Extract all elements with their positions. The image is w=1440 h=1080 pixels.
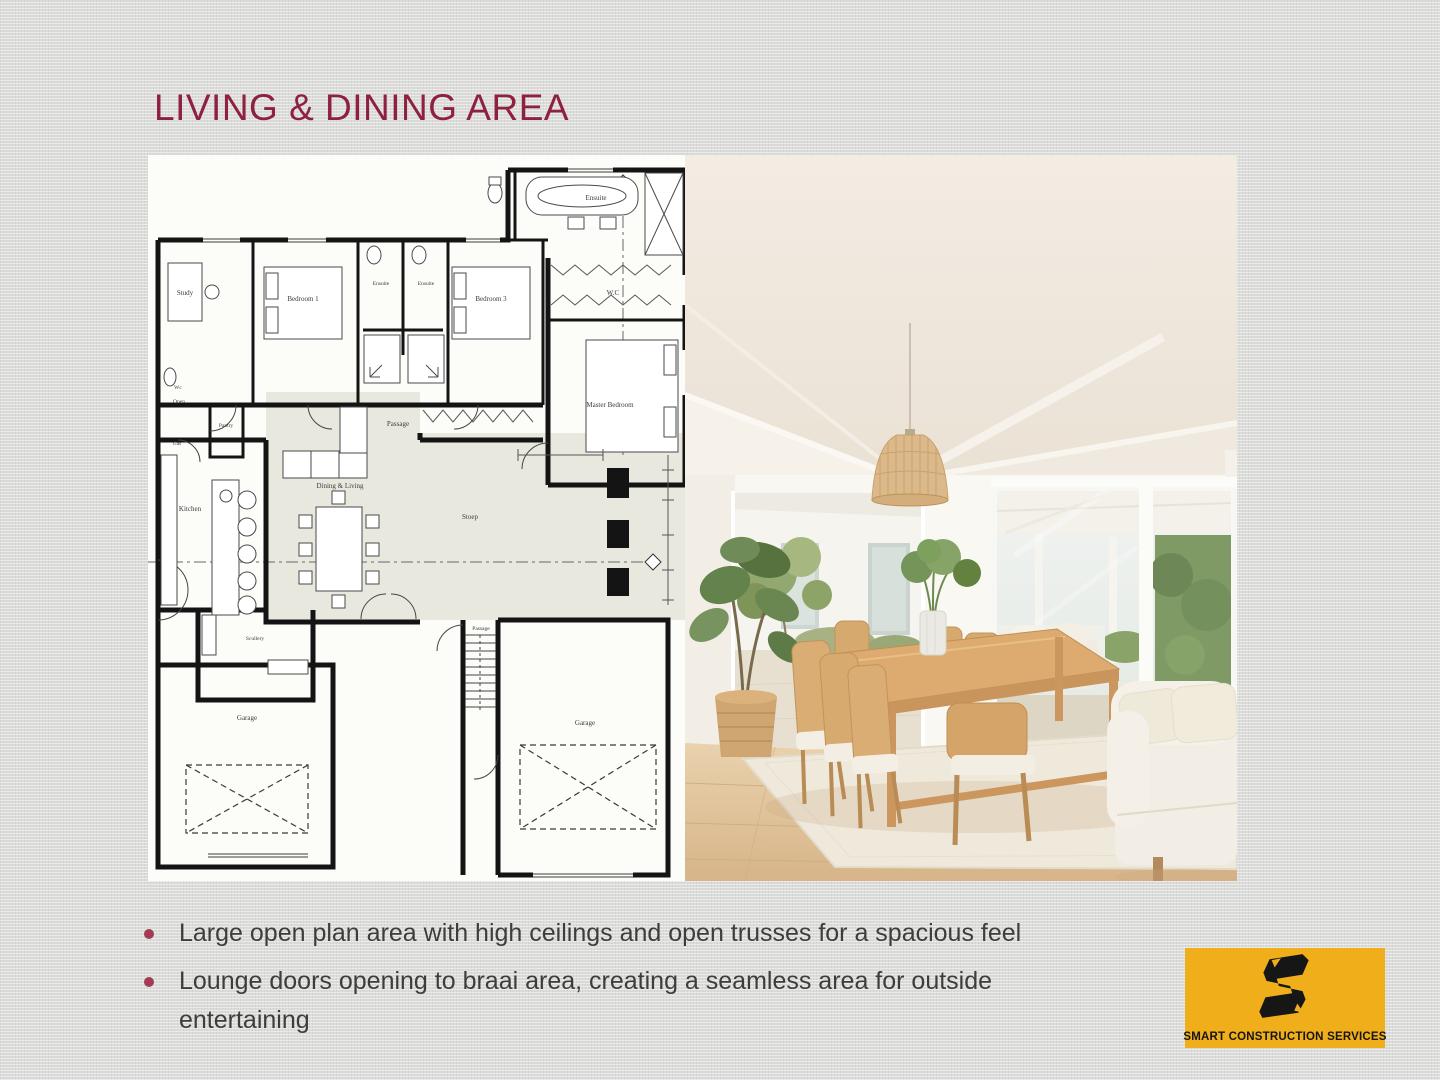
room-label: Kitchen — [179, 505, 202, 513]
room-label: Study — [177, 289, 194, 297]
stairs — [465, 635, 496, 711]
dining-room-photo-svg — [685, 155, 1237, 881]
floor-plan-image: Study Bedroom 1 Ensuite Ensuite Bedroom … — [148, 155, 685, 881]
room-label: Garage — [237, 714, 257, 722]
bullet-text: Large open plan area with high ceilings … — [179, 919, 1021, 947]
room-label: Passage — [387, 420, 409, 428]
room-label: W.C — [607, 289, 620, 297]
room-label: Dining & Living — [316, 482, 364, 490]
sofa — [1107, 681, 1237, 881]
slide: { "slide": { "title": "LIVING & DINING A… — [0, 0, 1440, 1080]
bullet-dot — [144, 977, 154, 987]
bullet-dot — [144, 929, 154, 939]
room-label: Bedroom 3 — [475, 295, 507, 303]
room-label: Passage — [472, 626, 490, 632]
room-label: Ensuite — [373, 281, 390, 287]
room-label: Ensuite — [418, 281, 435, 287]
room-label: Master Bedroom — [586, 401, 634, 409]
braai-column — [607, 468, 629, 596]
floor-plan-svg: Study Bedroom 1 Ensuite Ensuite Bedroom … — [148, 155, 685, 881]
room-label: Gas — [173, 441, 182, 447]
bullet-item: Large open plan area with high ceilings … — [142, 914, 1047, 953]
company-logo: SMART CONSTRUCTION SERVICES — [1185, 948, 1385, 1048]
bullet-list: Large open plan area with high ceilings … — [142, 914, 1047, 1049]
room-label: Open — [173, 399, 185, 405]
room-label: Stoep — [462, 513, 478, 521]
logo-s-mark-icon — [1249, 950, 1321, 1027]
garage-car-bays — [186, 745, 656, 833]
logo-text: SMART CONSTRUCTION SERVICES — [1183, 1031, 1386, 1043]
room-label: Ensuite — [586, 194, 607, 202]
room-label: Pantry — [219, 423, 234, 429]
bullet-text: Lounge doors opening to braai area, crea… — [179, 967, 992, 1034]
room-label: Scullery — [246, 636, 265, 642]
bullet-item: Lounge doors opening to braai area, crea… — [142, 962, 1047, 1040]
room-label: Bedroom 1 — [287, 295, 319, 303]
dining-room-photo — [685, 155, 1237, 881]
room-label: Wc — [174, 385, 182, 391]
page-title: LIVING & DINING AREA — [154, 87, 569, 129]
room-label: Garage — [575, 719, 595, 727]
vaulted-ceiling — [685, 155, 1237, 495]
